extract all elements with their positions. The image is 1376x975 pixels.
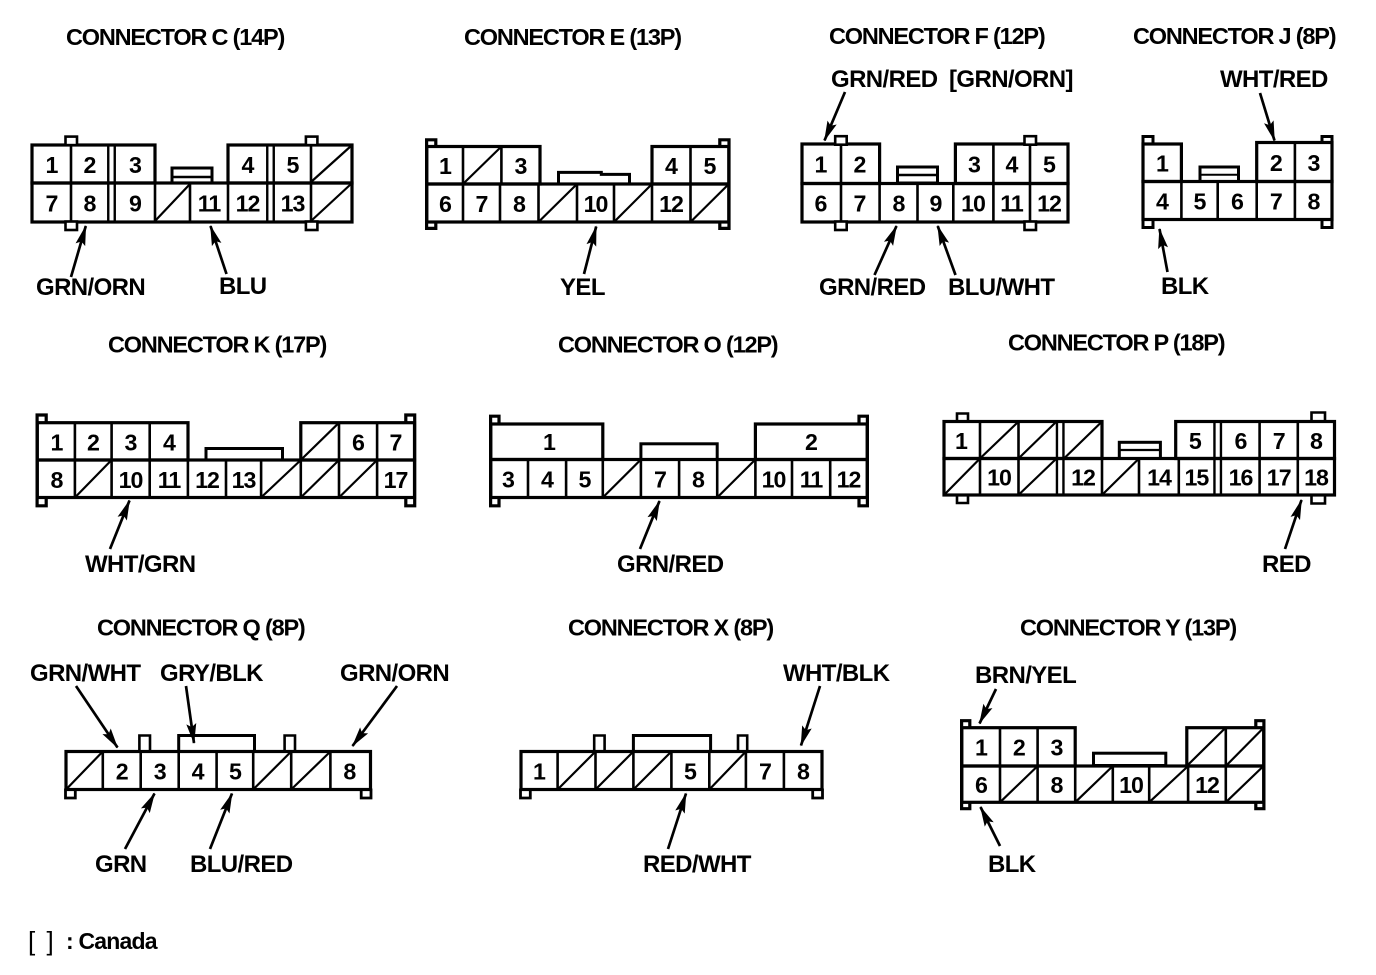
svg-text:1: 1: [815, 152, 828, 178]
svg-text:9: 9: [930, 191, 943, 217]
svg-text:2: 2: [87, 430, 99, 456]
svg-text:17: 17: [1267, 465, 1291, 491]
svg-text:7: 7: [476, 191, 488, 217]
svg-text:BLU/RED: BLU/RED: [190, 851, 293, 878]
svg-text:WHT/BLK: WHT/BLK: [783, 660, 891, 687]
svg-text:5: 5: [1189, 428, 1202, 454]
svg-text:5: 5: [229, 759, 242, 785]
svg-text:12: 12: [659, 191, 683, 217]
svg-text:6: 6: [975, 772, 988, 798]
svg-text:15: 15: [1185, 465, 1210, 491]
svg-text:5: 5: [579, 467, 592, 493]
svg-text:5: 5: [1194, 189, 1207, 215]
svg-text:CONNECTOR K (17P): CONNECTOR K (17P): [108, 332, 326, 358]
svg-text:CONNECTOR P (18P): CONNECTOR P (18P): [1008, 330, 1225, 356]
svg-text:8: 8: [1310, 428, 1323, 454]
svg-text:11: 11: [1000, 191, 1024, 217]
svg-text:1: 1: [543, 429, 556, 455]
svg-text:12: 12: [1195, 772, 1219, 798]
svg-text:12: 12: [195, 467, 219, 493]
svg-text:8: 8: [513, 191, 526, 217]
svg-text:1: 1: [955, 428, 968, 454]
svg-text:2: 2: [1270, 150, 1282, 176]
svg-text:8: 8: [1308, 189, 1321, 215]
svg-text:: Canada: : Canada: [66, 928, 158, 954]
svg-text:11: 11: [800, 467, 824, 493]
svg-text:10: 10: [961, 191, 985, 217]
svg-text:2: 2: [1013, 735, 1025, 761]
svg-text:CONNECTOR Q (8P): CONNECTOR Q (8P): [97, 615, 305, 641]
svg-text:3: 3: [515, 153, 528, 179]
svg-text:4: 4: [1006, 152, 1019, 178]
svg-text:6: 6: [1235, 428, 1248, 454]
svg-text:8: 8: [343, 759, 356, 785]
svg-text:4: 4: [1156, 189, 1169, 215]
svg-text:GRN: GRN: [95, 851, 147, 878]
svg-text:4: 4: [665, 153, 678, 179]
svg-text:6: 6: [1231, 189, 1244, 215]
svg-text:7: 7: [654, 467, 666, 493]
svg-text:5: 5: [287, 152, 300, 178]
svg-text:5: 5: [684, 759, 697, 785]
svg-text:3: 3: [1308, 150, 1321, 176]
svg-text:CONNECTOR Y (13P): CONNECTOR Y (13P): [1020, 615, 1236, 641]
svg-text:3: 3: [968, 152, 981, 178]
svg-text:17: 17: [384, 467, 408, 493]
svg-text:WHT/GRN: WHT/GRN: [85, 551, 195, 578]
svg-text:2: 2: [854, 152, 866, 178]
svg-text:BLK: BLK: [1161, 273, 1210, 300]
svg-text:GRN/RED: GRN/RED: [617, 551, 724, 578]
svg-text:13: 13: [281, 191, 306, 217]
svg-text:4: 4: [242, 152, 255, 178]
svg-text:11: 11: [158, 467, 182, 493]
svg-text:12: 12: [837, 467, 861, 493]
svg-text:7: 7: [854, 191, 866, 217]
svg-text:3: 3: [125, 430, 138, 456]
svg-text:6: 6: [815, 191, 828, 217]
svg-text:4: 4: [192, 759, 205, 785]
svg-text:CONNECTOR F (12P): CONNECTOR F (12P): [829, 23, 1045, 49]
svg-text:12: 12: [1071, 465, 1095, 491]
svg-text:6: 6: [439, 191, 452, 217]
svg-text:RED/WHT: RED/WHT: [643, 851, 752, 878]
svg-text:2: 2: [84, 152, 96, 178]
svg-text:BLK: BLK: [988, 851, 1037, 878]
svg-text:GRY/BLK: GRY/BLK: [160, 660, 264, 687]
svg-text:8: 8: [692, 467, 705, 493]
svg-text:[ ]: [ ]: [28, 926, 56, 956]
svg-text:GRN/ORN: GRN/ORN: [36, 274, 145, 301]
svg-text:CONNECTOR C (14P): CONNECTOR C (14P): [66, 24, 284, 50]
svg-text:5: 5: [704, 153, 717, 179]
svg-text:GRN/WHT: GRN/WHT: [30, 660, 141, 687]
svg-text:8: 8: [51, 467, 64, 493]
svg-text:2: 2: [805, 429, 817, 455]
svg-text:10: 10: [119, 467, 143, 493]
svg-text:GRN/RED: GRN/RED: [831, 66, 938, 93]
svg-text:CONNECTOR E (13P): CONNECTOR E (13P): [464, 24, 681, 50]
svg-text:GRN/ORN: GRN/ORN: [340, 660, 449, 687]
svg-text:3: 3: [129, 152, 142, 178]
svg-text:10: 10: [762, 467, 786, 493]
svg-text:[GRN/ORN]: [GRN/ORN]: [949, 66, 1073, 93]
svg-text:8: 8: [893, 191, 906, 217]
svg-text:7: 7: [1273, 428, 1285, 454]
svg-text:7: 7: [390, 430, 402, 456]
svg-text:9: 9: [129, 191, 142, 217]
svg-text:10: 10: [1119, 772, 1143, 798]
svg-text:CONNECTOR X (8P): CONNECTOR X (8P): [568, 615, 773, 641]
svg-text:12: 12: [236, 191, 260, 217]
svg-text:18: 18: [1304, 465, 1329, 491]
svg-text:GRN/RED: GRN/RED: [819, 274, 926, 301]
svg-text:13: 13: [232, 467, 257, 493]
svg-text:8: 8: [797, 759, 810, 785]
svg-text:10: 10: [987, 465, 1011, 491]
svg-text:BLU/WHT: BLU/WHT: [948, 274, 1055, 301]
svg-text:YEL: YEL: [560, 274, 605, 301]
svg-text:BRN/YEL: BRN/YEL: [975, 662, 1076, 689]
svg-text:11: 11: [198, 191, 222, 217]
svg-text:RED: RED: [1262, 551, 1311, 578]
svg-text:CONNECTOR O (12P): CONNECTOR O (12P): [558, 332, 778, 358]
svg-text:4: 4: [163, 430, 176, 456]
svg-text:8: 8: [84, 191, 97, 217]
svg-text:3: 3: [1050, 735, 1063, 761]
svg-text:12: 12: [1037, 191, 1061, 217]
svg-text:14: 14: [1147, 465, 1172, 491]
svg-text:4: 4: [541, 467, 554, 493]
svg-text:CONNECTOR J (8P): CONNECTOR J (8P): [1133, 23, 1336, 49]
svg-text:10: 10: [584, 191, 608, 217]
svg-text:3: 3: [502, 467, 515, 493]
svg-text:WHT/RED: WHT/RED: [1220, 66, 1328, 93]
svg-text:1: 1: [1156, 151, 1169, 177]
svg-text:1: 1: [439, 153, 452, 179]
svg-text:1: 1: [533, 759, 546, 785]
svg-text:1: 1: [46, 152, 59, 178]
svg-text:7: 7: [759, 759, 771, 785]
svg-text:8: 8: [1050, 772, 1063, 798]
svg-text:7: 7: [1270, 189, 1282, 215]
svg-text:2: 2: [116, 759, 128, 785]
svg-text:7: 7: [46, 191, 58, 217]
svg-text:1: 1: [975, 735, 988, 761]
svg-text:1: 1: [51, 430, 64, 456]
svg-text:BLU: BLU: [219, 273, 267, 300]
svg-text:6: 6: [352, 430, 365, 456]
svg-text:16: 16: [1229, 465, 1254, 491]
svg-text:3: 3: [154, 759, 167, 785]
svg-text:5: 5: [1043, 152, 1056, 178]
